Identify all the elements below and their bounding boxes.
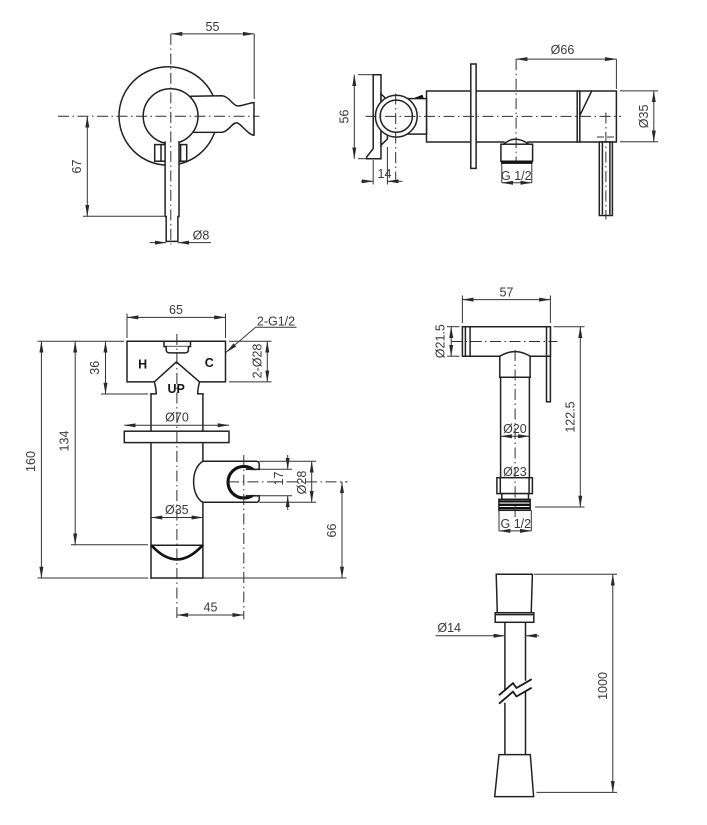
svg-text:2-Ø28: 2-Ø28	[251, 344, 265, 379]
svg-text:Ø20: Ø20	[503, 422, 527, 436]
svg-text:C: C	[205, 356, 214, 370]
svg-text:Ø28: Ø28	[295, 471, 309, 495]
svg-text:160: 160	[24, 451, 38, 472]
svg-text:Ø23: Ø23	[503, 465, 527, 479]
svg-text:55: 55	[206, 20, 220, 34]
svg-text:134: 134	[58, 431, 72, 452]
svg-text:66: 66	[325, 524, 339, 538]
svg-text:Ø8: Ø8	[193, 229, 210, 243]
svg-text:Ø35: Ø35	[637, 105, 651, 129]
svg-text:65: 65	[169, 303, 183, 317]
svg-text:Ø14: Ø14	[437, 621, 461, 635]
svg-text:14: 14	[378, 167, 392, 181]
svg-text:H: H	[138, 358, 147, 372]
svg-text:UP: UP	[168, 382, 185, 396]
svg-text:G 1/2: G 1/2	[501, 517, 532, 531]
svg-text:122.5: 122.5	[563, 401, 577, 432]
svg-text:1000: 1000	[596, 672, 610, 700]
svg-text:Ø35: Ø35	[165, 503, 189, 517]
svg-text:Ø21.5: Ø21.5	[434, 324, 448, 358]
svg-text:56: 56	[338, 110, 352, 124]
svg-text:G 1/2: G 1/2	[501, 169, 532, 183]
svg-text:2-G1/2: 2-G1/2	[257, 315, 295, 329]
svg-text:67: 67	[70, 160, 84, 174]
svg-text:Ø66: Ø66	[551, 43, 575, 57]
svg-text:45: 45	[204, 601, 218, 615]
svg-text:36: 36	[88, 361, 102, 375]
svg-text:57: 57	[500, 285, 514, 299]
svg-text:17: 17	[272, 472, 286, 486]
